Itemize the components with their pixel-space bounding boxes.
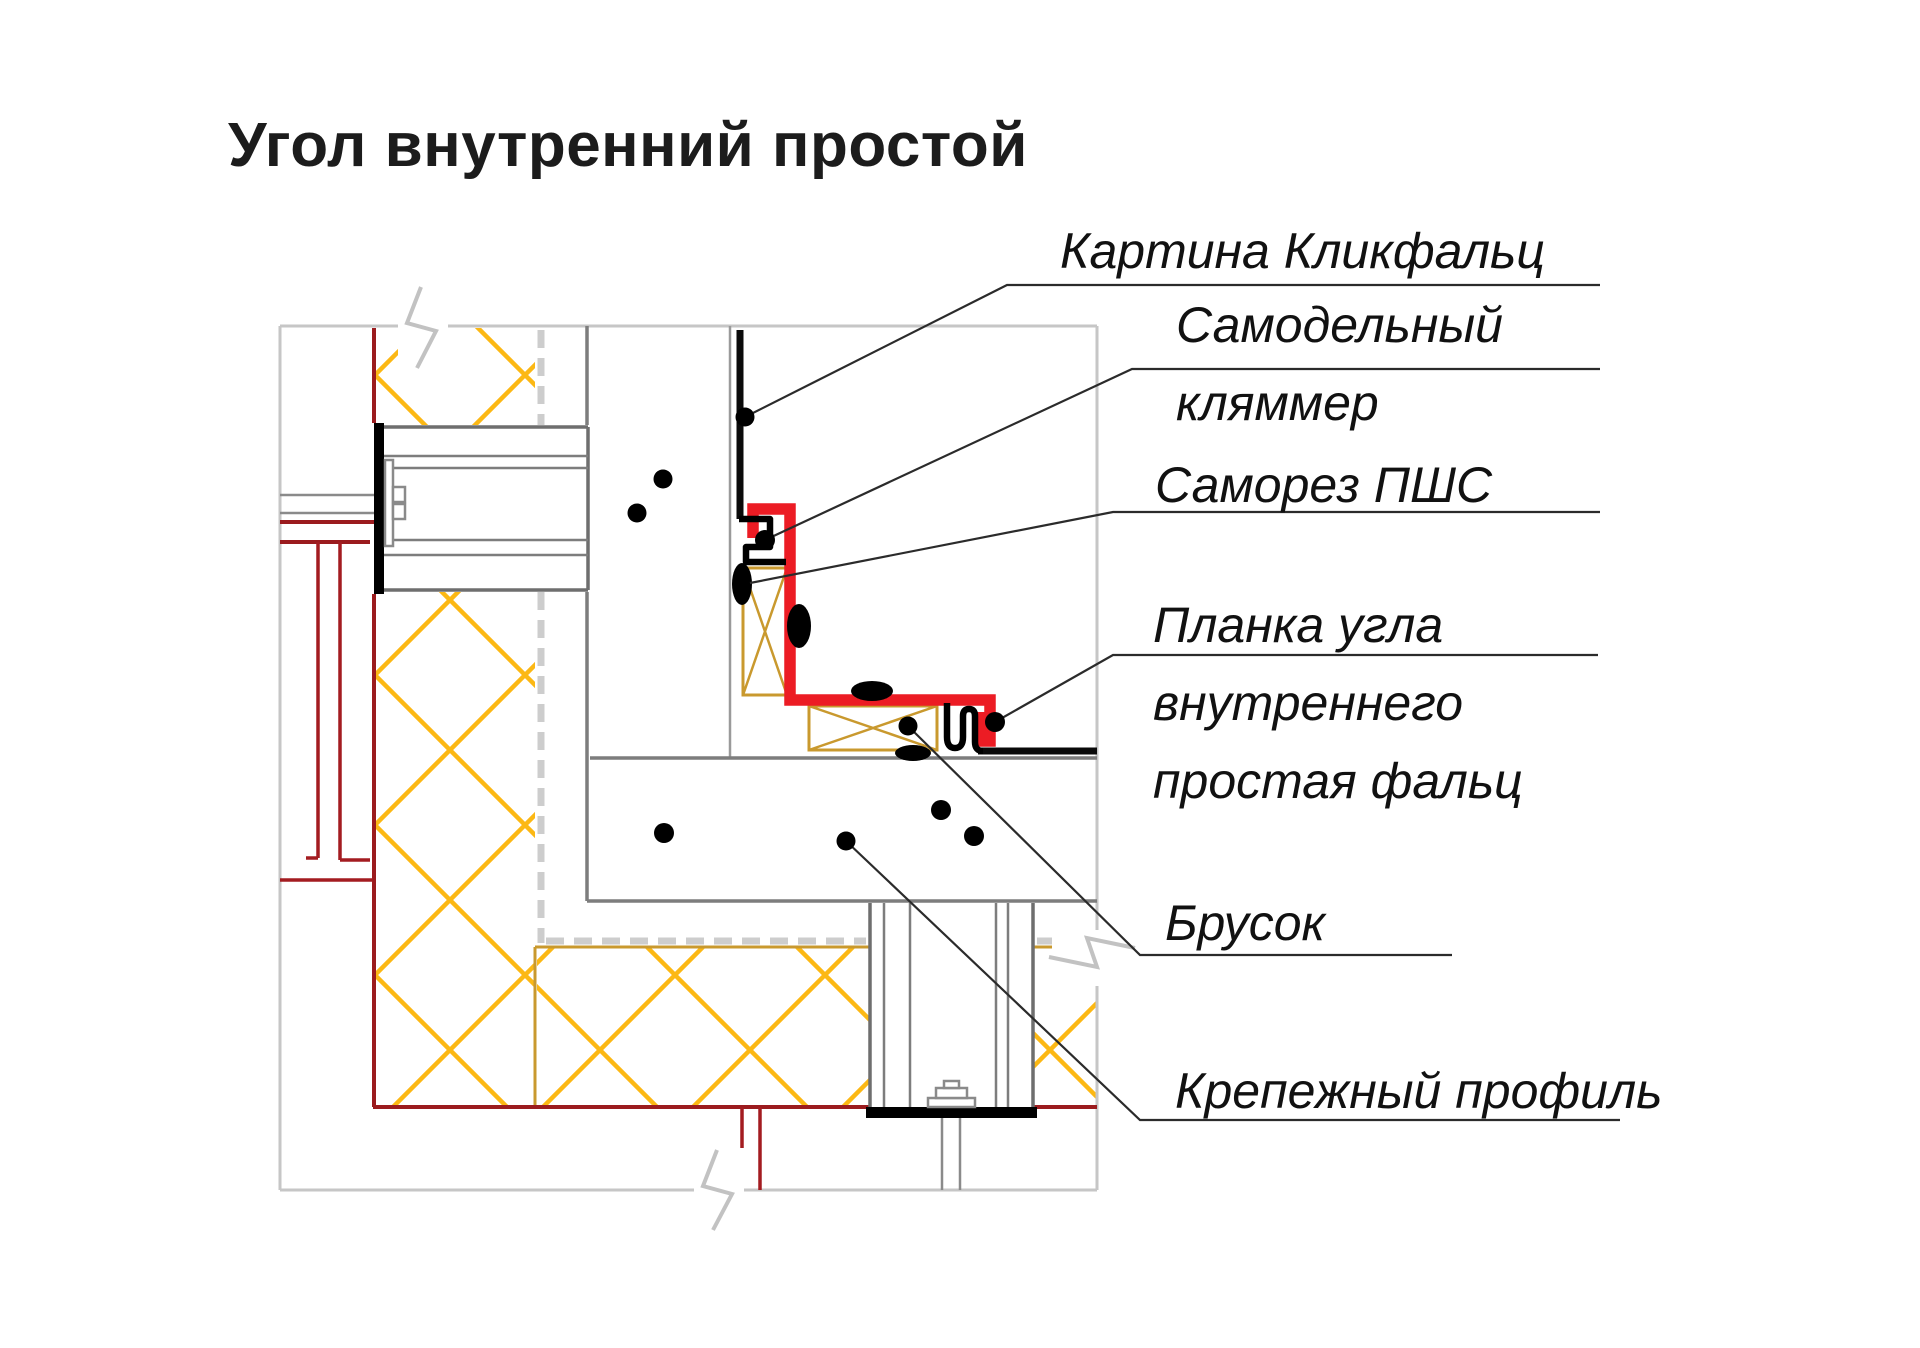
label-planka-ugla: Планка угла внутреннего простая фальц <box>1153 600 1523 806</box>
label-samorez-pshs: Саморез ПШС <box>1155 460 1492 510</box>
corner-detail-drawing <box>0 0 1920 1348</box>
drawing-title: Угол внутренний простой <box>228 110 1028 181</box>
screw-head-on-flashing <box>851 681 893 701</box>
bottom-fastening-profile <box>866 903 1037 1190</box>
left-fastening-profile <box>280 423 590 594</box>
bottom-klyammer-clip <box>947 703 983 751</box>
label-samodelny-klyammer: Самодельный кляммер <box>1176 300 1503 428</box>
fastener-dots <box>628 470 985 847</box>
label-brusok: Брусок <box>1165 898 1325 948</box>
construction-detail-page: Угол внутренний простой Картина Кликфаль… <box>0 0 1920 1348</box>
screw-head-under-block <box>895 745 931 761</box>
screw-head-top <box>732 563 752 605</box>
screw-head-side <box>787 604 811 648</box>
label-kartina-klikfalts: Картина Кликфальц <box>1060 226 1545 276</box>
left-wall-lines <box>587 326 730 901</box>
horizontal-timber-block <box>809 706 937 750</box>
leader-samorez <box>750 512 1600 583</box>
label-krepezhny-profil: Крепежный профиль <box>1175 1066 1662 1116</box>
